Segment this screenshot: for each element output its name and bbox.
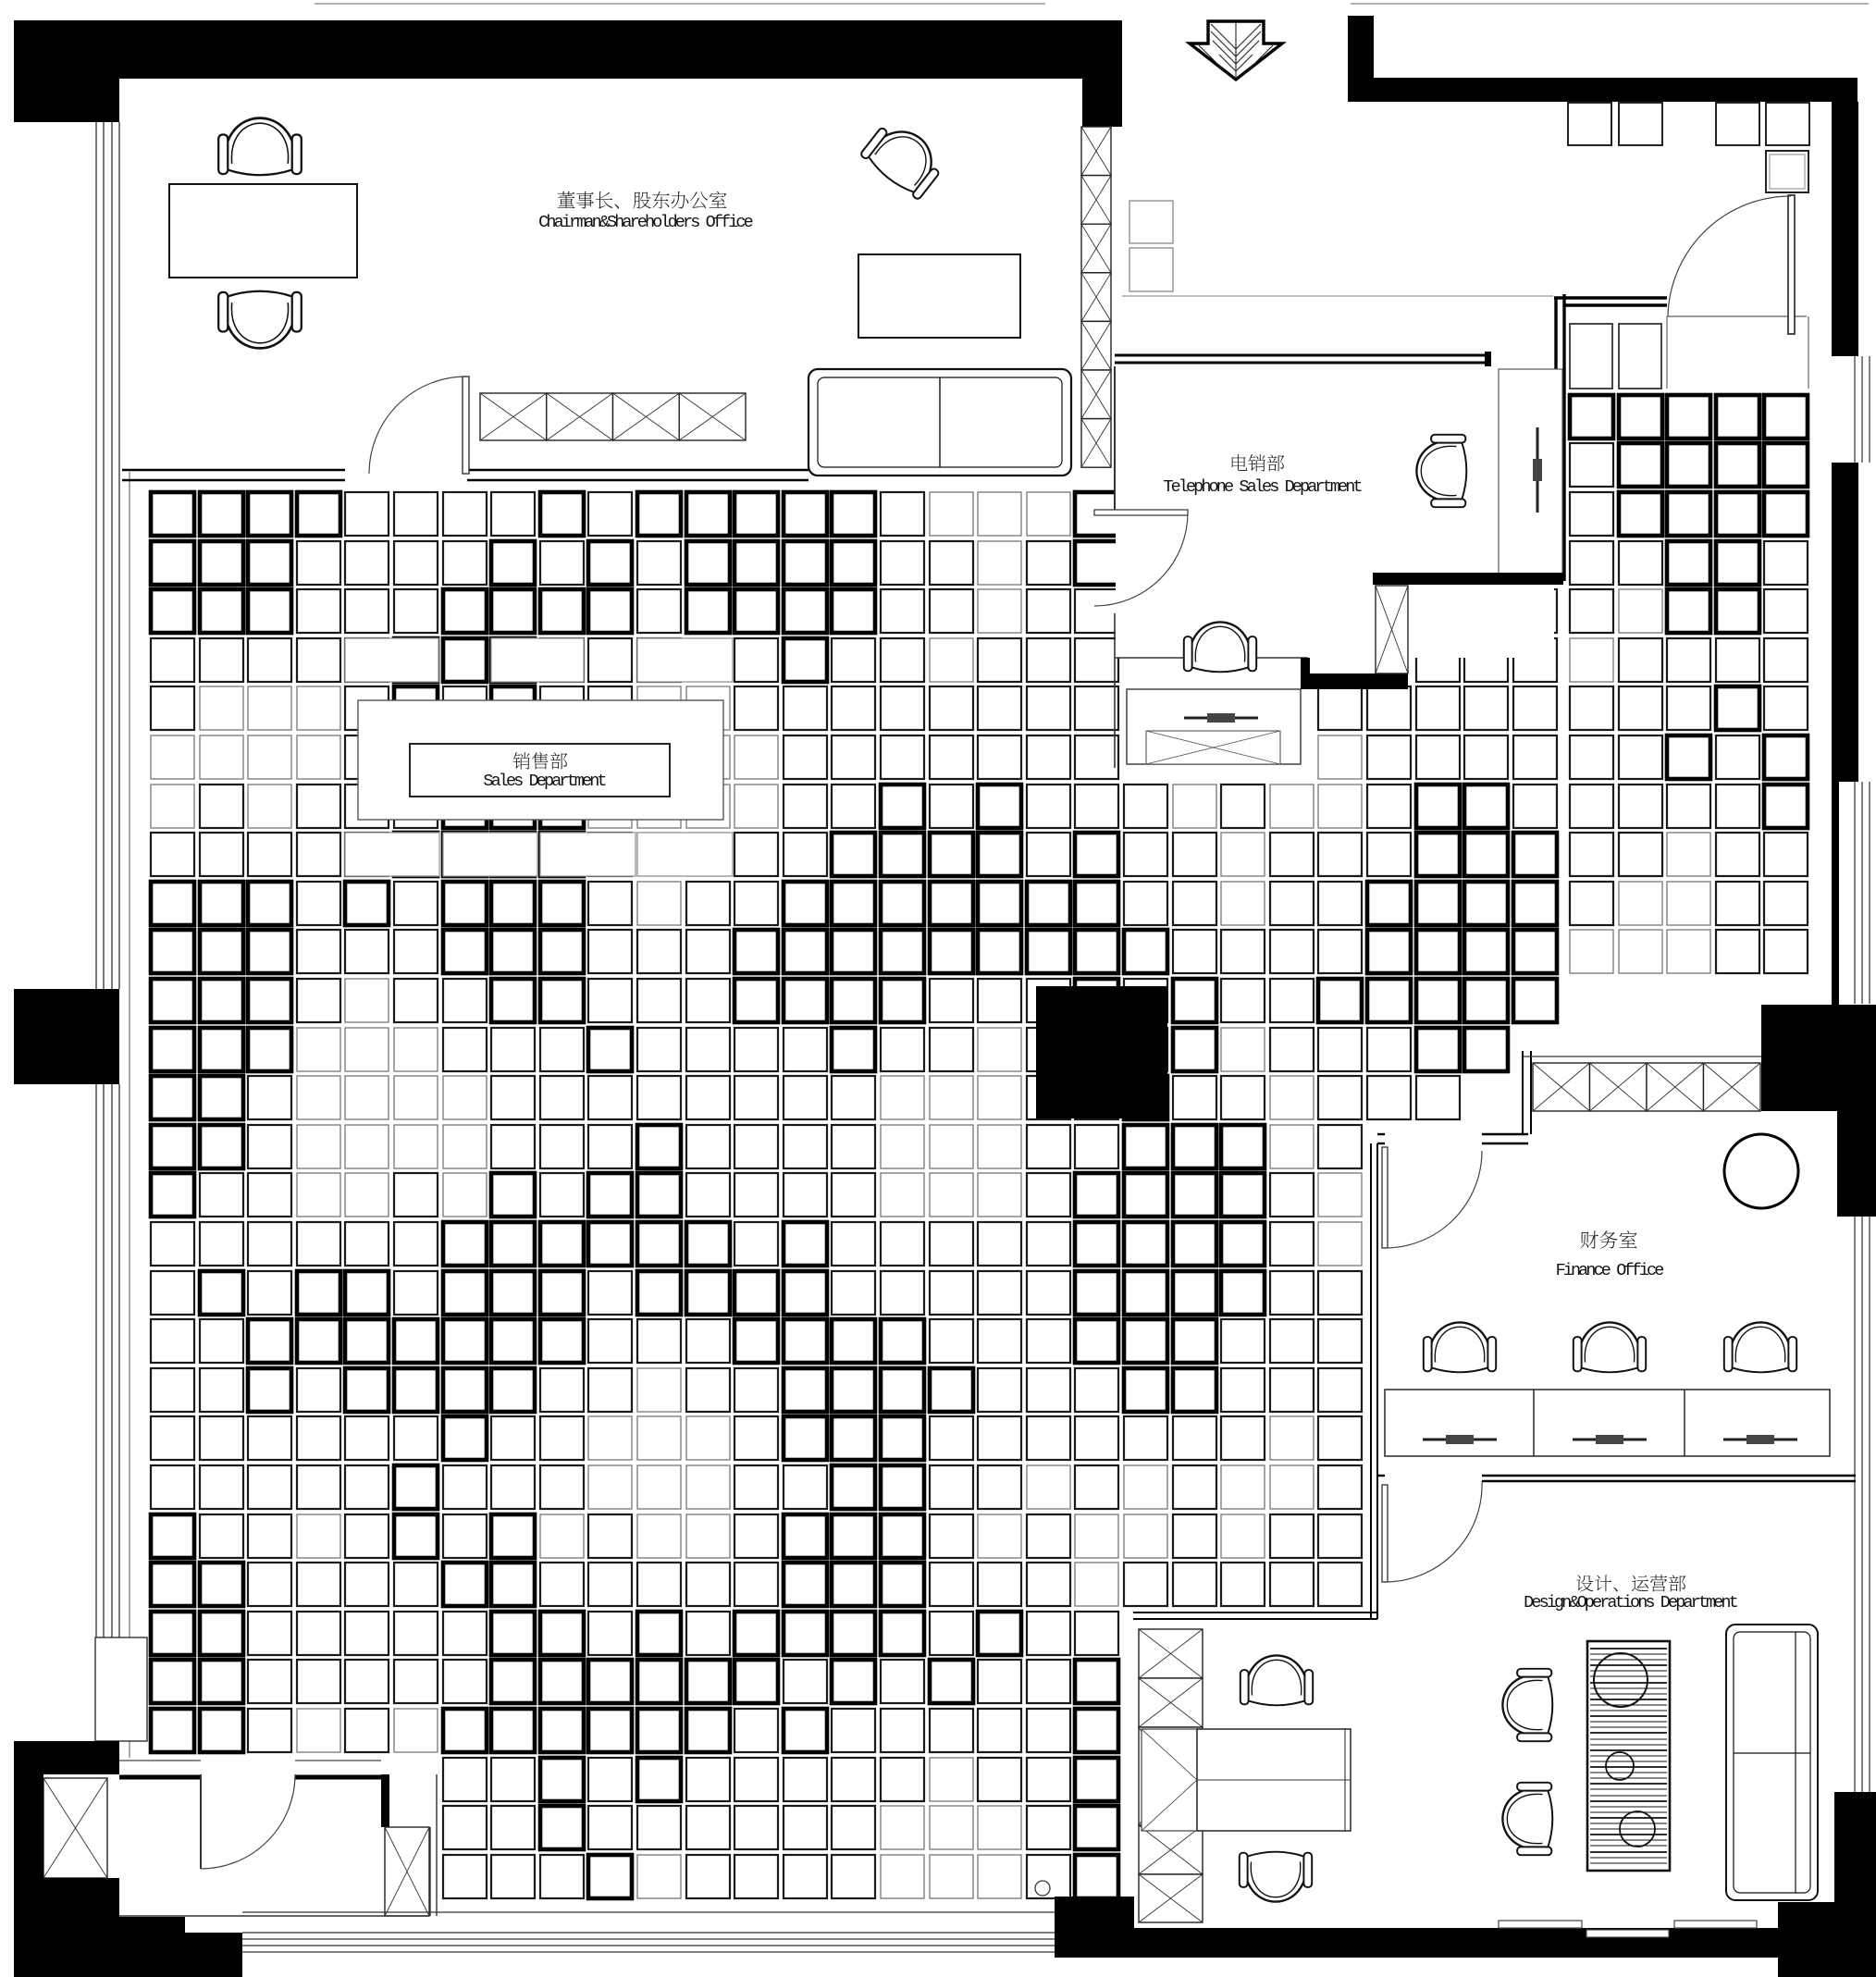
svg-text:Telephone Sales Department: Telephone Sales Department xyxy=(1163,477,1362,497)
svg-text:Finance Office: Finance Office xyxy=(1556,1261,1664,1280)
svg-text:Sales Department: Sales Department xyxy=(483,772,606,791)
svg-text:Design&Operations Department: Design&Operations Department xyxy=(1524,1593,1737,1612)
svg-text:Chairman&Shareholders Office: Chairman&Shareholders Office xyxy=(538,213,752,232)
